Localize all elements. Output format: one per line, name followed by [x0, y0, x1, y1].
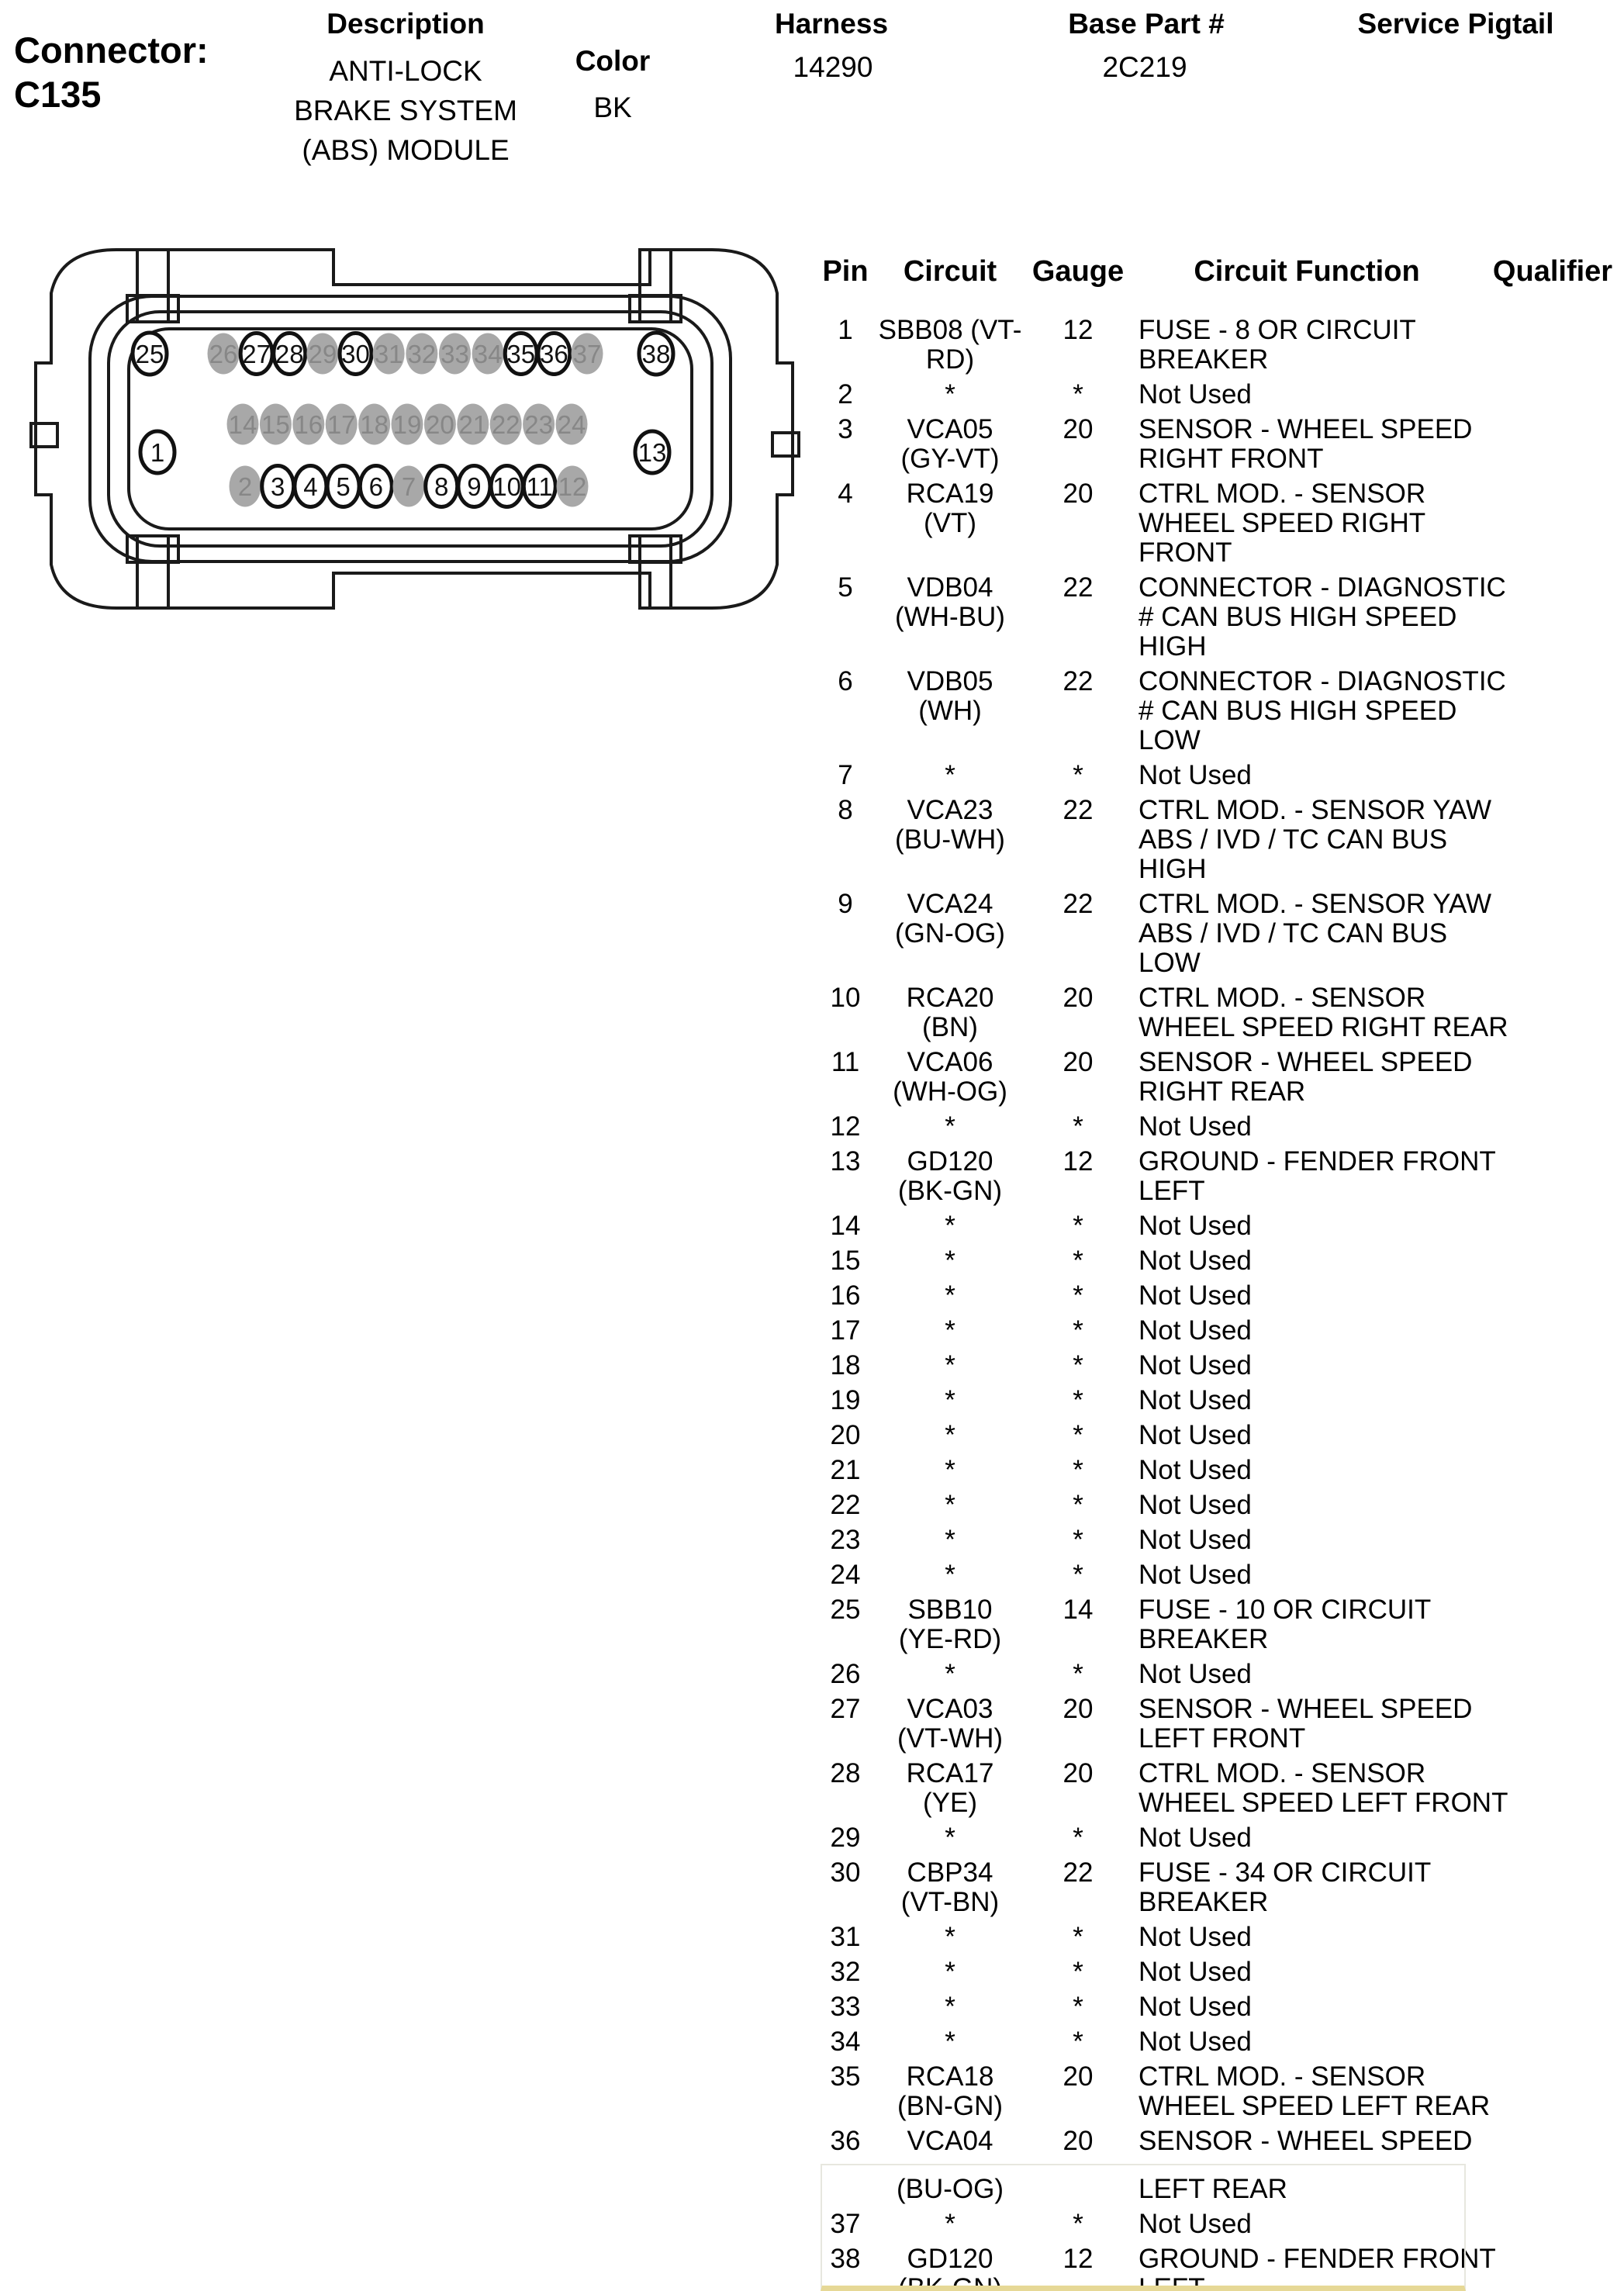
pin-7-label: 7 — [402, 472, 416, 501]
column-header-pin: Pin — [814, 254, 876, 289]
table-cell-qual — [1481, 1595, 1624, 1654]
table-cell-pin: 3 — [814, 415, 876, 474]
table-cell-pin: 8 — [814, 796, 876, 884]
color-value: BK — [593, 92, 631, 124]
mount-bar-top-right — [630, 295, 681, 322]
table-cell-gauge: * — [1024, 761, 1132, 790]
table-cell-func: CTRL MOD. - SENSOR YAWABS / IVD / TC CAN… — [1132, 796, 1481, 884]
table-cell-gauge: 20 — [1024, 1759, 1132, 1818]
table-cell-gauge: 20 — [1024, 2062, 1132, 2121]
table-cell-gauge: 20 — [1024, 479, 1132, 568]
table-cell-gauge: * — [1024, 1281, 1132, 1311]
table-cell-circuit: GD120(BK-GN) — [876, 1147, 1024, 1206]
table-cell-gauge: * — [1024, 1112, 1132, 1142]
table-cell-func: Not Used — [1132, 1560, 1481, 1590]
table-cell-circuit: VCA03(VT-WH) — [876, 1695, 1024, 1754]
table-cell-pin: 26 — [814, 1660, 876, 1689]
table-cell-func: Not Used — [1132, 2210, 1481, 2239]
table-cell-qual — [1481, 2210, 1624, 2239]
table-cell-gauge: * — [1024, 1386, 1132, 1415]
table-row-pin-23: 23**Not Used — [814, 1523, 1624, 1558]
table-cell-func: Not Used — [1132, 1823, 1481, 1853]
table-cell-qual — [1481, 2127, 1624, 2204]
table-row-pin-1: 1SBB08 (VT-RD)12FUSE - 8 OR CIRCUITBREAK… — [814, 313, 1624, 378]
table-row-pin-18: 18**Not Used — [814, 1349, 1624, 1384]
pin-8-label: 8 — [434, 472, 448, 501]
table-cell-pin: 17 — [814, 1316, 876, 1346]
pinout-table: Pin Circuit Gauge Circuit Function Quali… — [814, 254, 1624, 2291]
table-cell-qual — [1481, 1759, 1624, 1818]
table-cell-pin: 4 — [814, 479, 876, 568]
table-cell-circuit: SBB08 (VT-RD) — [876, 316, 1024, 375]
table-cell-gauge: * — [1024, 1246, 1132, 1276]
table-cell-gauge: * — [1024, 1823, 1132, 1853]
table-cell-qual — [1481, 796, 1624, 884]
table-cell-circuit: RCA20(BN) — [876, 983, 1024, 1042]
table-cell-circuit: * — [876, 1560, 1024, 1590]
table-row-pin-10: 10RCA20(BN)20CTRL MOD. - SENSORWHEEL SPE… — [814, 981, 1624, 1045]
table-cell-circuit: * — [876, 1958, 1024, 1987]
table-row-pin-21: 21**Not Used — [814, 1453, 1624, 1488]
table-cell-pin: 38 — [814, 2244, 876, 2291]
table-cell-circuit: * — [876, 1491, 1024, 1520]
description-line-1: ANTI-LOCK — [294, 51, 517, 91]
table-cell-gauge: * — [1024, 380, 1132, 409]
table-cell-func: CONNECTOR - DIAGNOSTIC# CAN BUS HIGH SPE… — [1132, 573, 1481, 662]
table-cell-pin: 7 — [814, 761, 876, 790]
pin-4-label: 4 — [303, 472, 317, 501]
harness-value: 14290 — [793, 51, 873, 84]
table-cell-pin: 23 — [814, 1526, 876, 1555]
pin-2-label: 2 — [238, 472, 252, 501]
pin-12-label: 12 — [558, 472, 587, 501]
table-cell-qual — [1481, 316, 1624, 375]
pin-17-label: 17 — [327, 410, 356, 439]
table-cell-func: CTRL MOD. - SENSORWHEEL SPEED LEFT REAR — [1132, 2062, 1481, 2121]
table-cell-func: Not Used — [1132, 1456, 1481, 1485]
table-cell-gauge: 14 — [1024, 1595, 1132, 1654]
pin-6-label: 6 — [369, 472, 383, 501]
table-cell-pin: 33 — [814, 1992, 876, 2022]
table-cell-qual — [1481, 573, 1624, 662]
table-row-pin-3: 3VCA05(GY-VT)20SENSOR - WHEEL SPEEDRIGHT… — [814, 413, 1624, 477]
table-rows: 1SBB08 (VT-RD)12FUSE - 8 OR CIRCUITBREAK… — [814, 313, 1624, 2291]
table-cell-gauge: * — [1024, 2210, 1132, 2239]
table-cell-qual — [1481, 1316, 1624, 1346]
table-cell-gauge: * — [1024, 1456, 1132, 1485]
table-cell-func: Not Used — [1132, 1923, 1481, 1952]
column-header-qualifier: Qualifier — [1481, 254, 1624, 289]
table-header-row: Pin Circuit Gauge Circuit Function Quali… — [814, 254, 1624, 289]
table-cell-pin: 16 — [814, 1281, 876, 1311]
mount-bar-bottom-right — [630, 536, 681, 562]
table-cell-func: SENSOR - WHEEL SPEEDRIGHT REAR — [1132, 1048, 1481, 1107]
table-cell-circuit: VCA04(BU-OG) — [876, 2127, 1024, 2204]
table-cell-circuit: * — [876, 380, 1024, 409]
table-cell-circuit: * — [876, 1992, 1024, 2022]
connector-pinout-page: Connector: C135 Description ANTI-LOCK BR… — [0, 0, 1624, 2291]
table-cell-pin: 25 — [814, 1595, 876, 1654]
table-row-pin-26: 26**Not Used — [814, 1657, 1624, 1692]
table-cell-qual — [1481, 1211, 1624, 1241]
pin-29-label: 29 — [309, 340, 337, 368]
table-row-pin-14: 14**Not Used — [814, 1209, 1624, 1244]
table-cell-circuit: SBB10(YE-RD) — [876, 1595, 1024, 1654]
table-cell-circuit: VDB05(WH) — [876, 667, 1024, 755]
pin-13-label: 13 — [638, 438, 667, 467]
table-cell-func: SENSOR - WHEEL SPEEDLEFT REAR — [1132, 2127, 1481, 2204]
table-cell-qual — [1481, 479, 1624, 568]
pin-20-label: 20 — [426, 410, 454, 439]
pin-31-label: 31 — [375, 340, 403, 368]
table-row-pin-30: 30CBP34(VT-BN)22FUSE - 34 OR CIRCUITBREA… — [814, 1856, 1624, 1920]
table-cell-pin: 32 — [814, 1958, 876, 1987]
pin-33-label: 33 — [441, 340, 469, 368]
table-cell-gauge: * — [1024, 1316, 1132, 1346]
table-cell-pin: 28 — [814, 1759, 876, 1818]
color-label: Color — [575, 45, 651, 78]
table-row-pin-16: 16**Not Used — [814, 1279, 1624, 1314]
table-cell-circuit: * — [876, 761, 1024, 790]
table-row-pin-37: 37**Not Used — [814, 2207, 1624, 2242]
table-row-pin-25: 25SBB10(YE-RD)14FUSE - 10 OR CIRCUITBREA… — [814, 1593, 1624, 1657]
table-cell-gauge: * — [1024, 1421, 1132, 1450]
side-tab-right — [772, 433, 799, 456]
table-row-pin-12: 12**Not Used — [814, 1110, 1624, 1145]
table-cell-pin: 22 — [814, 1491, 876, 1520]
table-cell-func: FUSE - 10 OR CIRCUITBREAKER — [1132, 1595, 1481, 1654]
table-cell-gauge: 20 — [1024, 415, 1132, 474]
page-title: Connector: C135 — [14, 28, 209, 116]
table-cell-circuit: * — [876, 1112, 1024, 1142]
table-cell-circuit: RCA18(BN-GN) — [876, 2062, 1024, 2121]
pin-5-label: 5 — [336, 472, 350, 501]
column-header-circuit: Circuit — [876, 254, 1024, 289]
table-cell-func: Not Used — [1132, 2027, 1481, 2057]
pin-18-label: 18 — [360, 410, 389, 439]
pin-16-label: 16 — [294, 410, 323, 439]
table-cell-circuit: * — [876, 1456, 1024, 1485]
table-cell-gauge: 20 — [1024, 1048, 1132, 1107]
table-cell-func: CTRL MOD. - SENSORWHEEL SPEED RIGHTFRONT — [1132, 479, 1481, 568]
table-cell-func: SENSOR - WHEEL SPEEDRIGHT FRONT — [1132, 415, 1481, 474]
table-cell-pin: 9 — [814, 890, 876, 978]
table-cell-func: CTRL MOD. - SENSOR YAWABS / IVD / TC CAN… — [1132, 890, 1481, 978]
table-cell-func: Not Used — [1132, 1526, 1481, 1555]
table-cell-gauge: * — [1024, 1958, 1132, 1987]
table-row-pin-27: 27VCA03(VT-WH)20SENSOR - WHEEL SPEEDLEFT… — [814, 1692, 1624, 1757]
table-cell-circuit: * — [876, 1923, 1024, 1952]
table-cell-pin: 27 — [814, 1695, 876, 1754]
table-cell-qual — [1481, 1992, 1624, 2022]
table-cell-pin: 34 — [814, 2027, 876, 2057]
table-cell-func: Not Used — [1132, 1660, 1481, 1689]
table-cell-pin: 20 — [814, 1421, 876, 1450]
table-row-pin-6: 6VDB05(WH)22CONNECTOR - DIAGNOSTIC# CAN … — [814, 665, 1624, 758]
pin-35-label: 35 — [506, 340, 535, 368]
table-cell-func: Not Used — [1132, 761, 1481, 790]
table-row-pin-31: 31**Not Used — [814, 1920, 1624, 1955]
table-cell-gauge: * — [1024, 1560, 1132, 1590]
table-row-pin-36: 36VCA04(BU-OG)20SENSOR - WHEEL SPEEDLEFT… — [814, 2124, 1624, 2207]
connector-face-diagram: 2538113262728293031323334353637141516171… — [23, 247, 807, 611]
table-cell-qual — [1481, 667, 1624, 755]
table-cell-gauge: * — [1024, 1351, 1132, 1380]
table-cell-qual — [1481, 1112, 1624, 1142]
table-row-pin-8: 8VCA23(BU-WH)22CTRL MOD. - SENSOR YAWABS… — [814, 793, 1624, 887]
table-row-pin-11: 11VCA06(WH-OG)20SENSOR - WHEEL SPEEDRIGH… — [814, 1045, 1624, 1110]
table-cell-circuit: VCA05(GY-VT) — [876, 415, 1024, 474]
table-cell-pin: 15 — [814, 1246, 876, 1276]
table-cell-qual — [1481, 761, 1624, 790]
table-cell-pin: 35 — [814, 2062, 876, 2121]
table-cell-pin: 29 — [814, 1823, 876, 1853]
harness-label: Harness — [775, 8, 888, 40]
table-row-pin-2: 2**Not Used — [814, 378, 1624, 413]
table-row-pin-38: 38GD120(BK-GN)12GROUND - FENDER FRONTLEF… — [814, 2242, 1624, 2291]
table-cell-circuit: VCA23(BU-WH) — [876, 796, 1024, 884]
table-cell-func: Not Used — [1132, 1246, 1481, 1276]
table-cell-circuit: GD120(BK-GN) — [876, 2244, 1024, 2291]
pin-27-label: 27 — [242, 340, 271, 368]
table-cell-func: Not Used — [1132, 1421, 1481, 1450]
table-cell-qual — [1481, 1823, 1624, 1853]
table-cell-pin: 31 — [814, 1923, 876, 1952]
table-cell-func: CTRL MOD. - SENSORWHEEL SPEED LEFT FRONT — [1132, 1759, 1481, 1818]
pin-19-label: 19 — [393, 410, 422, 439]
table-cell-func: Not Used — [1132, 1211, 1481, 1241]
table-cell-gauge: * — [1024, 1491, 1132, 1520]
table-cell-gauge: 12 — [1024, 1147, 1132, 1206]
table-cell-qual — [1481, 1351, 1624, 1380]
pin-25-label: 25 — [136, 340, 164, 368]
table-cell-pin: 19 — [814, 1386, 876, 1415]
table-cell-qual — [1481, 983, 1624, 1042]
table-cell-func: GROUND - FENDER FRONTLEFT — [1132, 1147, 1481, 1206]
table-cell-gauge: 20 — [1024, 1695, 1132, 1754]
table-cell-pin: 36 — [814, 2127, 876, 2204]
connector-id: C135 — [14, 72, 209, 116]
table-row-pin-22: 22**Not Used — [814, 1488, 1624, 1523]
table-cell-func: GROUND - FENDER FRONTLEFT — [1132, 2244, 1481, 2291]
table-cell-func: Not Used — [1132, 380, 1481, 409]
table-cell-pin: 24 — [814, 1560, 876, 1590]
pin-9-label: 9 — [467, 472, 481, 501]
pin-21-label: 21 — [458, 410, 487, 439]
table-cell-qual — [1481, 1421, 1624, 1450]
table-row-pin-33: 33**Not Used — [814, 1990, 1624, 2025]
table-cell-qual — [1481, 1386, 1624, 1415]
table-row-pin-9: 9VCA24(GN-OG)22CTRL MOD. - SENSOR YAWABS… — [814, 887, 1624, 981]
description-line-2: BRAKE SYSTEM — [294, 91, 517, 130]
pin-32-label: 32 — [407, 340, 436, 368]
pin-3-label: 3 — [271, 472, 285, 501]
pin-map: 2538113262728293031323334353637141516171… — [133, 333, 673, 507]
table-cell-circuit: VCA06(WH-OG) — [876, 1048, 1024, 1107]
table-cell-pin: 14 — [814, 1211, 876, 1241]
table-row-pin-19: 19**Not Used — [814, 1384, 1624, 1418]
table-cell-qual — [1481, 1456, 1624, 1485]
table-cell-gauge: * — [1024, 1526, 1132, 1555]
pin-26-label: 26 — [209, 340, 238, 368]
pin-11-label: 11 — [527, 472, 553, 501]
table-row-pin-17: 17**Not Used — [814, 1314, 1624, 1349]
table-cell-gauge: * — [1024, 2027, 1132, 2057]
table-cell-func: Not Used — [1132, 1281, 1481, 1311]
table-cell-pin: 1 — [814, 316, 876, 375]
column-header-gauge: Gauge — [1024, 254, 1132, 289]
table-cell-pin: 30 — [814, 1858, 876, 1917]
table-cell-qual — [1481, 1560, 1624, 1590]
table-cell-pin: 10 — [814, 983, 876, 1042]
table-cell-pin: 18 — [814, 1351, 876, 1380]
service-pigtail-label: Service Pigtail — [1358, 8, 1554, 40]
pin-37-label: 37 — [573, 340, 602, 368]
pin-36-label: 36 — [540, 340, 568, 368]
description-label: Description — [327, 8, 485, 40]
table-cell-func: CONNECTOR - DIAGNOSTIC# CAN BUS HIGH SPE… — [1132, 667, 1481, 755]
table-cell-circuit: * — [876, 1823, 1024, 1853]
table-row-pin-7: 7**Not Used — [814, 758, 1624, 793]
table-cell-circuit: * — [876, 2210, 1024, 2239]
table-cell-func: Not Used — [1132, 1316, 1481, 1346]
table-cell-func: Not Used — [1132, 1112, 1481, 1142]
table-row-pin-24: 24**Not Used — [814, 1558, 1624, 1593]
pin-10-label: 10 — [492, 472, 521, 501]
table-cell-func: FUSE - 34 OR CIRCUITBREAKER — [1132, 1858, 1481, 1917]
table-cell-gauge: 22 — [1024, 667, 1132, 755]
table-cell-gauge: * — [1024, 1923, 1132, 1952]
table-row-pin-34: 34**Not Used — [814, 2025, 1624, 2060]
base-part-label: Base Part # — [1068, 8, 1225, 40]
table-cell-circuit: RCA19(VT) — [876, 479, 1024, 568]
table-cell-qual — [1481, 1923, 1624, 1952]
table-cell-pin: 6 — [814, 667, 876, 755]
pin-23-label: 23 — [524, 410, 553, 439]
table-cell-func: SENSOR - WHEEL SPEEDLEFT FRONT — [1132, 1695, 1481, 1754]
table-cell-func: Not Used — [1132, 1992, 1481, 2022]
table-cell-circuit: * — [876, 1660, 1024, 1689]
table-cell-qual — [1481, 1048, 1624, 1107]
table-cell-qual — [1481, 1958, 1624, 1987]
table-row-pin-13: 13GD120(BK-GN)12GROUND - FENDER FRONTLEF… — [814, 1145, 1624, 1209]
table-cell-qual — [1481, 2027, 1624, 2057]
table-cell-qual — [1481, 380, 1624, 409]
table-cell-gauge: 22 — [1024, 890, 1132, 978]
table-cell-pin: 2 — [814, 380, 876, 409]
table-cell-gauge: * — [1024, 1660, 1132, 1689]
table-row-pin-28: 28RCA17(YE)20CTRL MOD. - SENSORWHEEL SPE… — [814, 1757, 1624, 1821]
table-cell-gauge: 20 — [1024, 2127, 1132, 2204]
description-line-3: (ABS) MODULE — [294, 130, 517, 170]
table-cell-qual — [1481, 890, 1624, 978]
table-cell-pin: 5 — [814, 573, 876, 662]
pin-15-label: 15 — [261, 410, 290, 439]
table-row-pin-20: 20**Not Used — [814, 1418, 1624, 1453]
table-cell-qual — [1481, 1491, 1624, 1520]
pin-34-label: 34 — [474, 340, 503, 368]
pin-14-label: 14 — [229, 410, 257, 439]
table-cell-qual — [1481, 1660, 1624, 1689]
pin-24-label: 24 — [558, 410, 586, 439]
table-cell-circuit: * — [876, 1526, 1024, 1555]
table-cell-circuit: * — [876, 1281, 1024, 1311]
table-cell-circuit: * — [876, 1316, 1024, 1346]
table-cell-func: Not Used — [1132, 1386, 1481, 1415]
pin-30-label: 30 — [341, 340, 370, 368]
table-cell-gauge: 22 — [1024, 573, 1132, 662]
description-value: ANTI-LOCK BRAKE SYSTEM (ABS) MODULE — [294, 51, 517, 170]
table-cell-circuit: * — [876, 1421, 1024, 1450]
table-cell-circuit: * — [876, 1211, 1024, 1241]
table-cell-circuit: * — [876, 1351, 1024, 1380]
table-cell-gauge: 12 — [1024, 2244, 1132, 2291]
table-cell-func: Not Used — [1132, 1958, 1481, 1987]
table-cell-circuit: * — [876, 1386, 1024, 1415]
table-cell-qual — [1481, 1246, 1624, 1276]
table-cell-qual — [1481, 2244, 1624, 2291]
table-cell-gauge: 22 — [1024, 1858, 1132, 1917]
pin-38-label: 38 — [642, 340, 671, 368]
table-cell-circuit: CBP34(VT-BN) — [876, 1858, 1024, 1917]
table-row-pin-4: 4RCA19(VT)20CTRL MOD. - SENSORWHEEL SPEE… — [814, 477, 1624, 571]
table-cell-func: Not Used — [1132, 1351, 1481, 1380]
table-cell-qual — [1481, 415, 1624, 474]
base-part-value: 2C219 — [1102, 51, 1187, 84]
connector-label: Connector: — [14, 28, 209, 72]
table-cell-circuit: RCA17(YE) — [876, 1759, 1024, 1818]
table-cell-func: CTRL MOD. - SENSORWHEEL SPEED RIGHT REAR — [1132, 983, 1481, 1042]
table-row-pin-5: 5VDB04(WH-BU)22CONNECTOR - DIAGNOSTIC# C… — [814, 571, 1624, 665]
table-row-pin-32: 32**Not Used — [814, 1955, 1624, 1990]
pin-22-label: 22 — [492, 410, 520, 439]
table-row-pin-29: 29**Not Used — [814, 1821, 1624, 1856]
table-cell-gauge: * — [1024, 1211, 1132, 1241]
table-cell-qual — [1481, 1147, 1624, 1206]
table-cell-func: FUSE - 8 OR CIRCUITBREAKER — [1132, 316, 1481, 375]
table-cell-gauge: 12 — [1024, 316, 1132, 375]
table-cell-circuit: VCA24(GN-OG) — [876, 890, 1024, 978]
table-cell-pin: 37 — [814, 2210, 876, 2239]
table-cell-gauge: 22 — [1024, 796, 1132, 884]
table-cell-pin: 11 — [814, 1048, 876, 1107]
table-cell-pin: 12 — [814, 1112, 876, 1142]
table-cell-qual — [1481, 1695, 1624, 1754]
table-cell-qual — [1481, 1526, 1624, 1555]
table-cell-pin: 13 — [814, 1147, 876, 1206]
pin-28-label: 28 — [275, 340, 304, 368]
table-cell-func: Not Used — [1132, 1491, 1481, 1520]
table-cell-circuit: * — [876, 1246, 1024, 1276]
table-cell-qual — [1481, 1858, 1624, 1917]
table-cell-gauge: * — [1024, 1992, 1132, 2022]
table-row-pin-35: 35RCA18(BN-GN)20CTRL MOD. - SENSORWHEEL … — [814, 2060, 1624, 2124]
table-cell-gauge: 20 — [1024, 983, 1132, 1042]
pin-1-label: 1 — [150, 438, 164, 467]
table-cell-circuit: VDB04(WH-BU) — [876, 573, 1024, 662]
table-cell-circuit: * — [876, 2027, 1024, 2057]
table-cell-pin: 21 — [814, 1456, 876, 1485]
table-cell-qual — [1481, 2062, 1624, 2121]
column-header-function: Circuit Function — [1132, 254, 1481, 289]
table-row-pin-15: 15**Not Used — [814, 1244, 1624, 1279]
table-cell-qual — [1481, 1281, 1624, 1311]
